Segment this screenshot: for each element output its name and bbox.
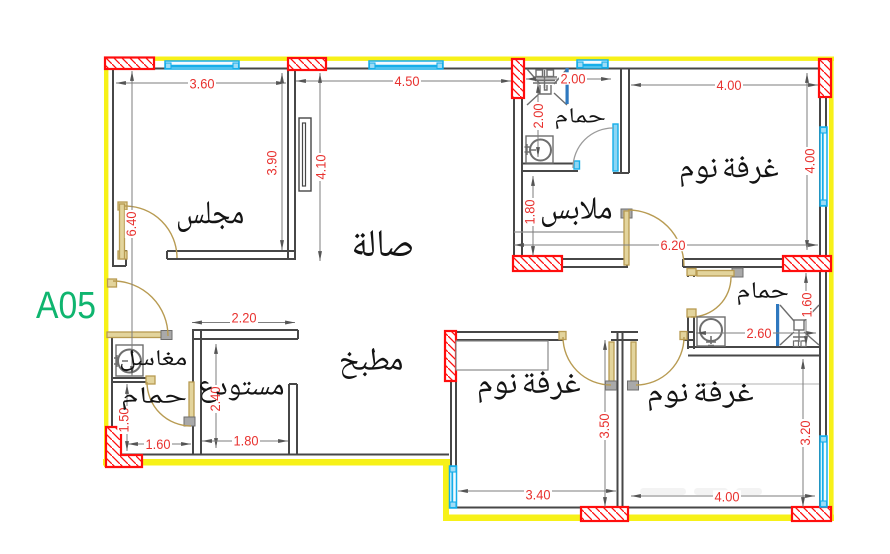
svg-text:1.50: 1.50 — [115, 407, 131, 432]
svg-text:4.10: 4.10 — [312, 154, 328, 179]
svg-text:1.80: 1.80 — [234, 432, 259, 448]
svg-text:3.60: 3.60 — [190, 75, 215, 91]
svg-text:2.20: 2.20 — [232, 309, 257, 325]
svg-text:3.20: 3.20 — [797, 420, 813, 445]
svg-text:2.00: 2.00 — [530, 103, 546, 128]
svg-text:A05: A05 — [36, 285, 96, 327]
svg-text:6.40: 6.40 — [123, 211, 139, 236]
svg-text:1.60: 1.60 — [798, 292, 814, 317]
svg-text:2.00: 2.00 — [561, 70, 586, 86]
svg-text:2.40: 2.40 — [207, 386, 223, 411]
svg-text:1.60: 1.60 — [146, 436, 171, 452]
svg-text:4.00: 4.00 — [801, 148, 817, 173]
svg-text:3.50: 3.50 — [596, 413, 612, 438]
svg-text:6.20: 6.20 — [661, 237, 686, 253]
svg-text:4.00: 4.00 — [715, 488, 740, 504]
svg-text:3.90: 3.90 — [263, 150, 279, 175]
svg-text:3.40: 3.40 — [526, 486, 551, 502]
svg-text:4.00: 4.00 — [717, 77, 742, 93]
svg-text:4.50: 4.50 — [395, 73, 420, 89]
svg-text:1.80: 1.80 — [521, 199, 537, 224]
svg-text:2.60: 2.60 — [747, 325, 772, 341]
